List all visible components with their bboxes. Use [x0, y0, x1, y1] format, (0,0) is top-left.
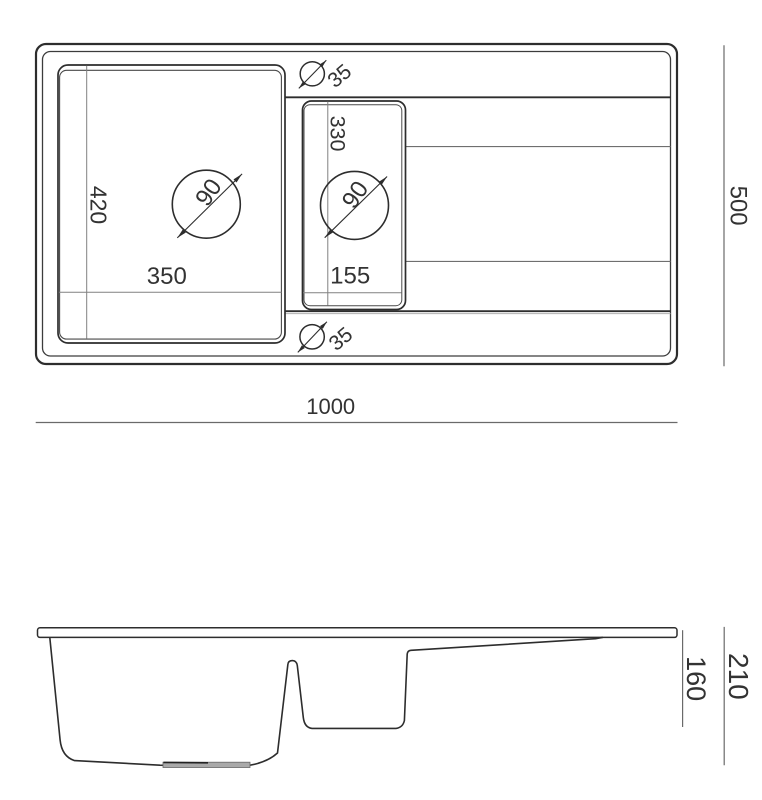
svg-text:500: 500	[724, 186, 751, 226]
svg-text:155: 155	[330, 262, 370, 289]
svg-text:420: 420	[85, 186, 111, 224]
svg-text:350: 350	[147, 263, 187, 290]
svg-text:210: 210	[723, 653, 754, 700]
svg-text:1000: 1000	[306, 394, 355, 419]
svg-text:160: 160	[681, 656, 711, 701]
svg-text:330: 330	[326, 116, 350, 152]
